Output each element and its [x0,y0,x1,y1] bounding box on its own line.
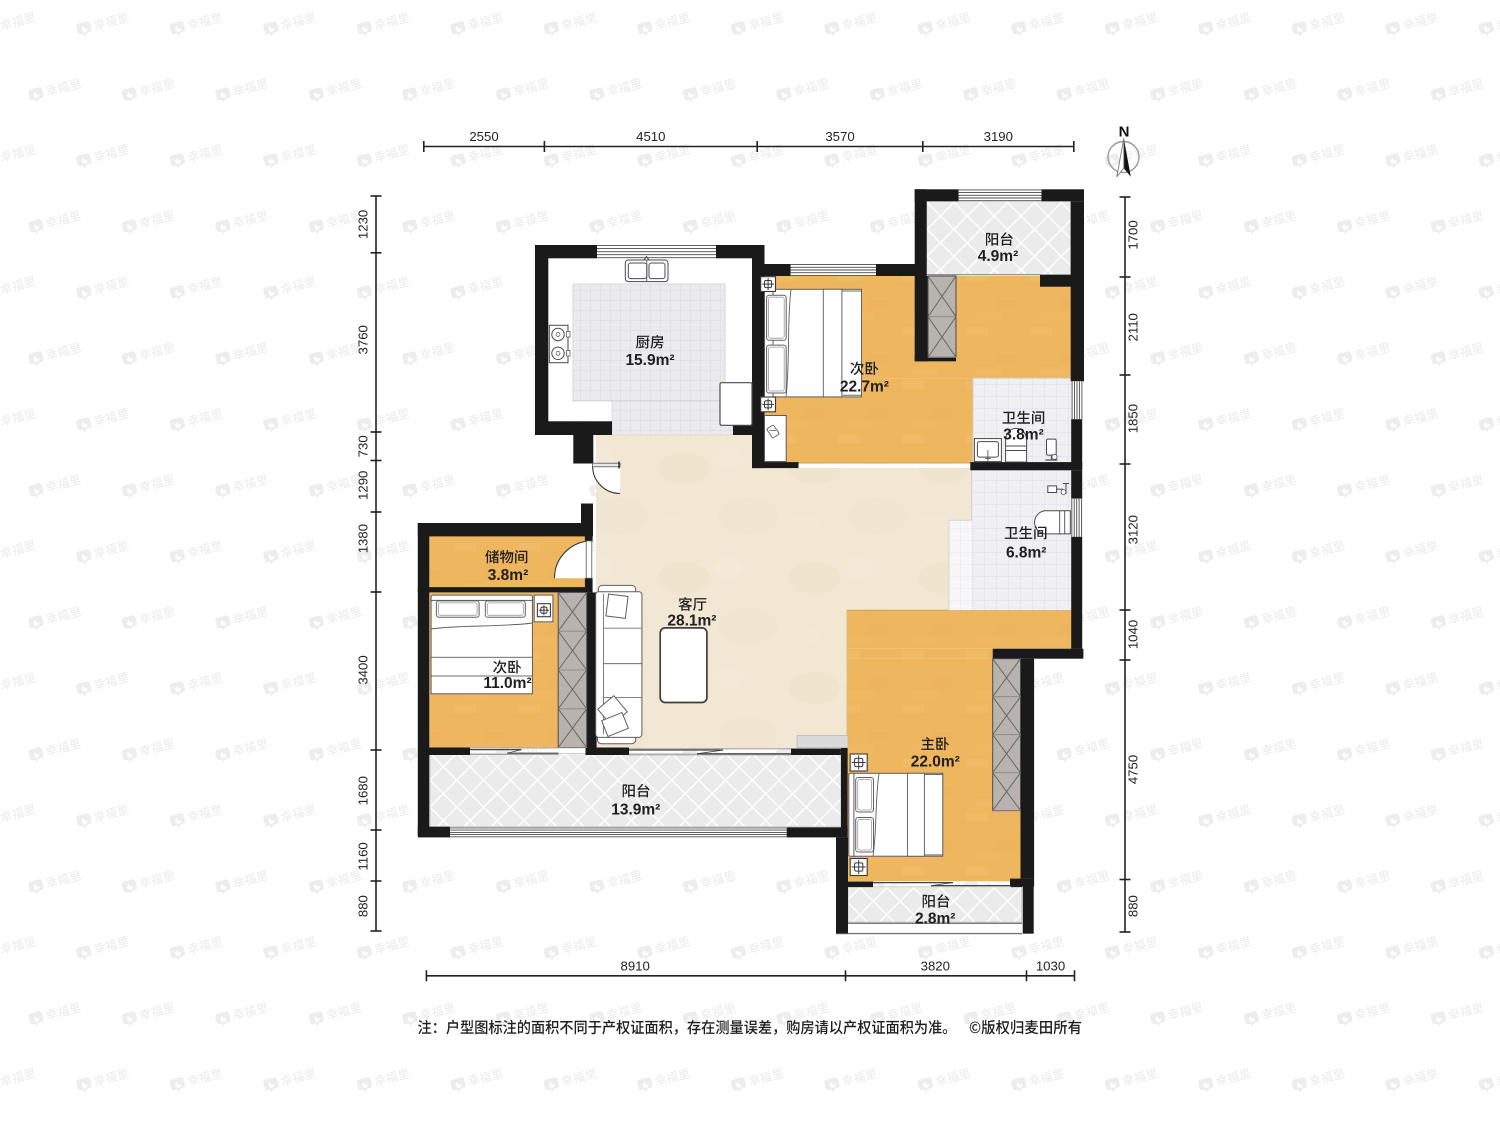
svg-text:2.8m²: 2.8m² [915,911,956,928]
svg-text:22.0m²: 22.0m² [911,754,960,771]
svg-text:1850: 1850 [1126,404,1141,433]
svg-text:3.8m²: 3.8m² [1003,427,1044,444]
svg-text:13.9m²: 13.9m² [611,802,660,819]
svg-text:2550: 2550 [469,129,498,144]
svg-text:1680: 1680 [356,776,371,805]
svg-text:3570: 3570 [825,129,854,144]
svg-text:3120: 3120 [1126,515,1141,544]
svg-text:1290: 1290 [356,471,371,500]
svg-text:4750: 4750 [1126,755,1141,784]
svg-text:8910: 8910 [621,959,650,974]
svg-text:4.9m²: 4.9m² [978,248,1019,265]
svg-text:28.1m²: 28.1m² [667,612,716,629]
svg-text:1040: 1040 [1126,620,1141,649]
svg-text:880: 880 [356,895,371,917]
svg-text:11.0m²: 11.0m² [483,675,531,692]
svg-text:1380: 1380 [356,524,371,553]
svg-text:1030: 1030 [1036,959,1065,974]
svg-text:3760: 3760 [356,325,371,354]
svg-text:1160: 1160 [356,842,371,870]
svg-text:730: 730 [356,435,371,457]
svg-text:3820: 3820 [921,959,950,974]
svg-text:3.8m²: 3.8m² [488,567,529,584]
svg-text:3190: 3190 [984,129,1013,144]
svg-text:2110: 2110 [1126,313,1141,341]
svg-text:3400: 3400 [356,655,371,684]
svg-text:880: 880 [1126,895,1141,917]
svg-text:22.7m²: 22.7m² [840,379,889,396]
svg-text:6.8m²: 6.8m² [1006,545,1047,562]
svg-text:N: N [1119,124,1130,141]
svg-text:1230: 1230 [356,210,371,239]
svg-text:15.9m²: 15.9m² [625,352,674,369]
svg-text:1700: 1700 [1126,220,1141,249]
svg-text:4510: 4510 [636,129,665,144]
